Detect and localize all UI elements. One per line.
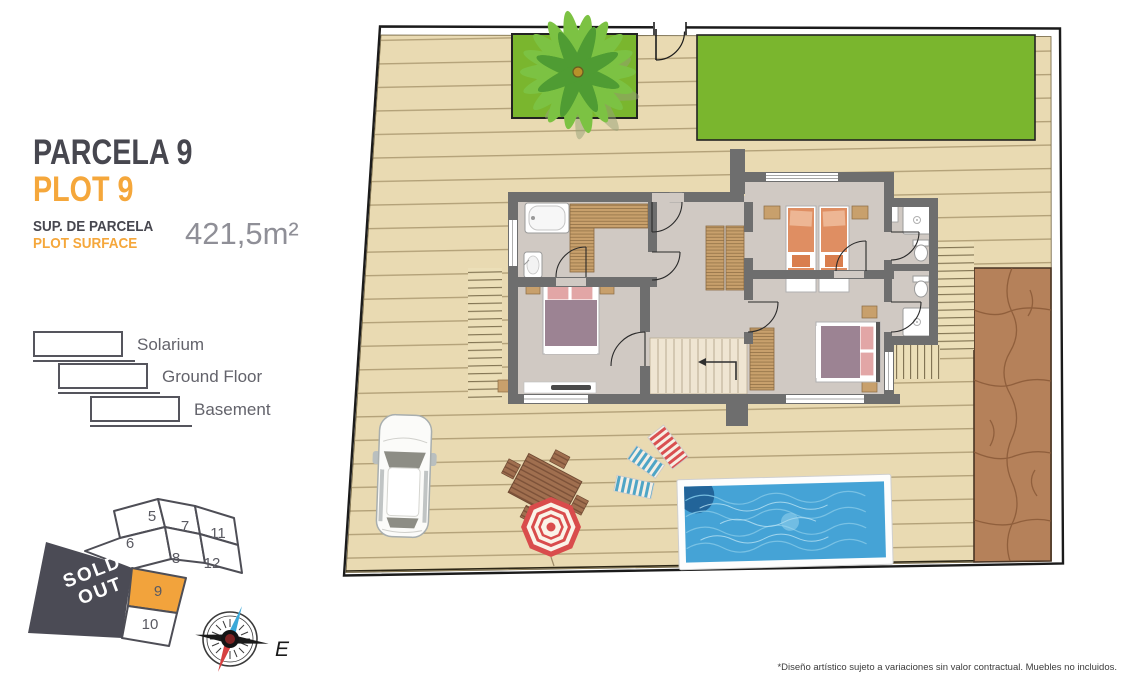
staircase [650,338,747,394]
washbasin [524,252,542,278]
double-bed-right [816,322,880,382]
legend-label: Ground Floor [162,367,262,389]
shower-top [903,206,931,234]
double-bed-left [543,280,599,354]
pool [677,472,893,570]
steps-west [468,268,502,400]
plot-number: 11 [210,525,226,542]
toilet-top [913,240,929,261]
legend-box-solarium [33,331,123,357]
legend-row-ground-floor: Ground Floor [58,363,262,389]
compass-east-label: E [275,638,290,661]
plot-number-highlighted: 9 [154,583,162,600]
surface-value: 421,5m² [185,216,299,252]
info-panel: PARCELA 9 PLOT 9 SUP. DE PARCELA PLOT SU… [33,134,333,208]
disclaimer-text: *Diseño artístico sujeto a variaciones s… [777,662,1117,673]
car [370,414,438,538]
surface-label-es: SUP. DE PARCELA [33,218,153,235]
legend-row-basement: Basement [90,396,271,422]
garden-patch-right [697,35,1035,140]
toilet-bottom [913,276,929,297]
plot-number: 10 [142,616,159,633]
plot-title-en: PLOT 9 [33,171,279,208]
window-bench [524,382,596,393]
terrain-area [974,268,1051,562]
plot-number: 5 [148,508,156,525]
plot-number: 7 [181,518,189,535]
legend-box-basement [90,396,180,422]
compass-rose-icon: E [183,598,293,678]
twin-bed-2 [819,206,849,292]
plot-title-es: PARCELA 9 [33,134,279,171]
plot-number: 12 [204,555,221,572]
legend-label: Basement [194,400,271,422]
plot-number: 6 [126,535,134,552]
twin-bed-1 [786,206,816,292]
legend-box-ground-floor [58,363,148,389]
legend-row-solarium: Solarium [33,331,204,357]
legend-label: Solarium [137,335,204,357]
plan-canvas: PARCELA 9 PLOT 9 SUP. DE PARCELA PLOT SU… [0,0,1125,678]
surface-label-en: PLOT SURFACE [33,235,153,252]
shower-bottom [903,308,931,336]
bathtub [525,203,569,233]
steps-southeast [890,345,940,379]
plot-number: 8 [172,550,180,567]
steps-east [938,242,974,350]
surface-labels: SUP. DE PARCELA PLOT SURFACE [33,218,167,252]
